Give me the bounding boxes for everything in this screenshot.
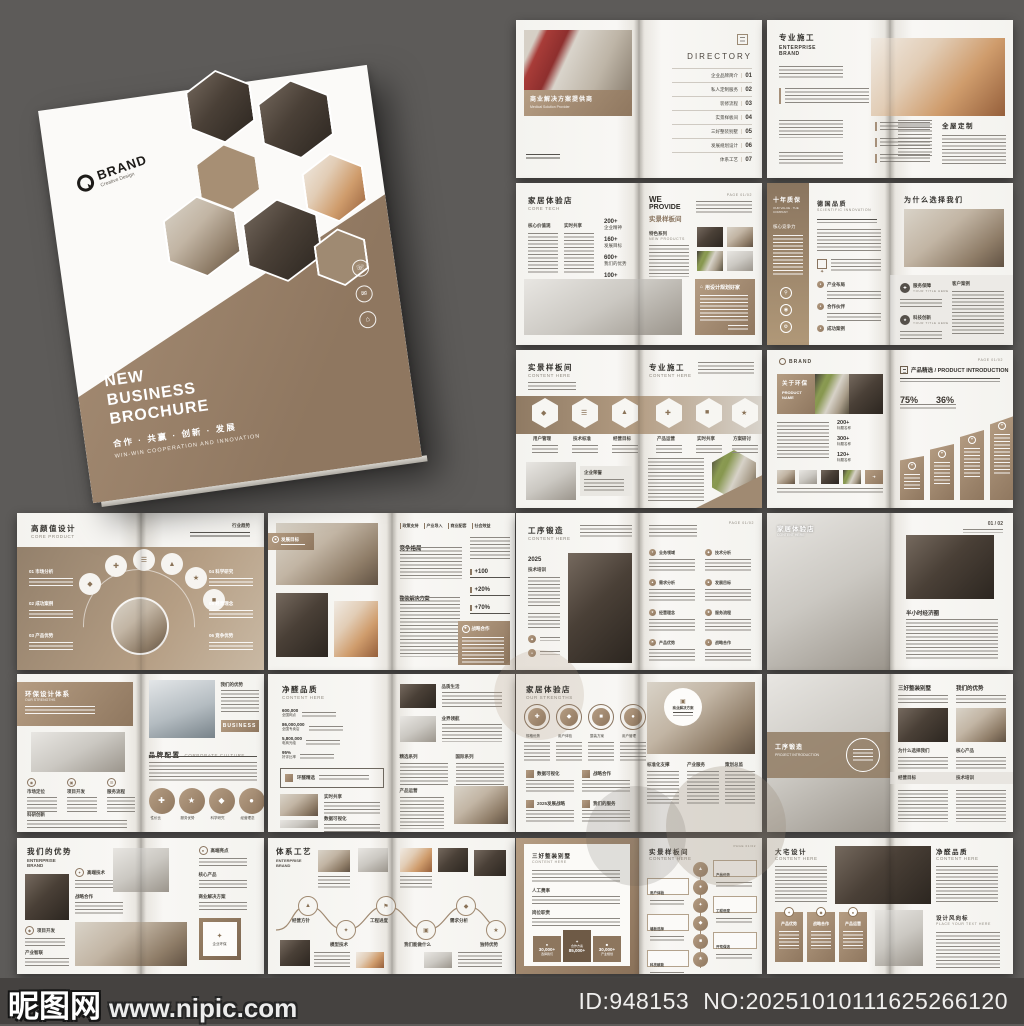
bedroom-photo <box>647 682 755 754</box>
grid-item-icon <box>582 800 590 808</box>
step-node: ★ <box>693 952 708 967</box>
mini-photo <box>318 850 350 872</box>
text-lines <box>700 295 748 321</box>
stair-photo <box>849 374 883 414</box>
brown-sidebar: 十年质保 OUR VALUE · THE COMPANY 核心竞争力 ⚲ ◉ ⚙ <box>767 183 809 345</box>
spread-product-intro: BRAND 关于环保 PRODUCT NAME 200+标题名称 300+标题名… <box>767 350 1013 508</box>
kitchen-photo <box>113 848 169 892</box>
watermark: 昵图网 www.nipic.com <box>8 981 297 1026</box>
text-lines <box>400 547 462 579</box>
text-lines <box>648 458 704 502</box>
value-circle: ★ <box>179 788 205 814</box>
item-icon: ■ <box>705 579 712 586</box>
text-lines <box>656 445 682 455</box>
text-lines <box>777 488 883 494</box>
gear-icon: ⚙ <box>780 321 792 333</box>
design-banner: ⌂用设计规划好家 <box>695 279 755 335</box>
mail-icon: ✉ <box>355 284 374 303</box>
feature-icon: ▲ <box>161 553 183 575</box>
text-lines <box>817 219 877 223</box>
stats-column: 200+企业精神 160+发展目标 600+我们的优势 100+业务范围 <box>604 219 627 285</box>
text-lines <box>209 642 253 652</box>
directory-item: 实景样板间|04 <box>672 110 752 124</box>
value-tile: ✦ 产品优势 <box>775 912 803 962</box>
text-lines <box>732 445 758 455</box>
kitchen-bar-photo <box>815 374 849 414</box>
mini-photo <box>843 470 861 484</box>
text-lines <box>906 619 998 661</box>
text-lines <box>528 613 560 629</box>
text-lines <box>564 233 594 273</box>
study-room-photo <box>904 209 1004 267</box>
honor-box: 企业荣誉 <box>580 466 632 496</box>
dining-photo <box>568 553 632 663</box>
text-lines <box>649 245 689 277</box>
text-lines <box>528 233 558 273</box>
brand-logo-icon <box>75 172 97 194</box>
text-lines <box>827 291 881 299</box>
text-lines <box>817 229 881 251</box>
location-icon: ⌂ <box>358 310 377 329</box>
bullet-icon: ● <box>817 281 824 288</box>
strength-circle: ✚ <box>524 704 550 730</box>
directory-item: 体系工艺|07 <box>672 152 752 166</box>
text-lines <box>831 259 881 271</box>
dot-icon: ◆ <box>25 926 34 935</box>
grid-item-icon <box>526 770 534 778</box>
strength-circle: ● <box>620 704 646 730</box>
leaf-icon: ✦ <box>908 462 916 470</box>
text-lines <box>696 445 722 455</box>
feature-icon: ★ <box>185 567 207 589</box>
leaf-icon: ✦ <box>968 436 976 444</box>
monitor-icon: ▣ <box>67 778 76 787</box>
text-lines <box>190 532 250 539</box>
timeline-node: ▲ <box>298 896 318 916</box>
text-lines <box>572 445 598 455</box>
text-lines <box>942 135 1006 165</box>
leaf-icon: ✦ <box>217 932 223 940</box>
brochure-cover: BRAND Creative Design NEW BUSINESS BROCH… <box>38 65 422 503</box>
text-lines <box>221 690 259 714</box>
title-band: 环保设计体系 OUR STRENGTHS <box>17 682 133 726</box>
mini-photo <box>727 251 753 271</box>
select-box: 环醛精选 <box>280 768 384 788</box>
timeline-node: ★ <box>486 920 506 940</box>
value-circle: ✚ <box>149 788 175 814</box>
right-title: 全屋定制 <box>942 120 1006 130</box>
tile-icon: ● <box>848 907 858 917</box>
step-box: 科技赋能 <box>647 950 689 967</box>
text-lines <box>149 762 257 782</box>
mini-photo <box>727 227 753 247</box>
directory-item: 装修流程|03 <box>672 96 752 110</box>
value-tile: ● 产品运营 <box>839 912 867 962</box>
goal-badge: ◉发展目标 <box>268 533 314 550</box>
directory-item: 企业品牌简介|01 <box>672 68 752 82</box>
value-tile: ◆ 战略合作 <box>807 912 835 962</box>
text-lines <box>900 331 942 339</box>
bullet-icon: ● <box>817 325 824 332</box>
spread-eco-design: 环保设计体系 OUR STRENGTHS ◉市场定位 ▣项目开发 ☰服务流程 科… <box>17 674 264 832</box>
tile-icon: ◆ <box>816 907 826 917</box>
spread-quality: 净醛品质CONTENT HERE 600,000全国网点 86,000,000全… <box>268 674 515 832</box>
industrial-photo <box>835 846 931 904</box>
caption-zh: 商业解决方案提供商 <box>530 94 626 103</box>
value-circle: ● <box>239 788 265 814</box>
text-lines <box>584 479 624 493</box>
item-icon: ▲ <box>649 579 656 586</box>
mini-photo <box>821 470 839 484</box>
stock-preview-canvas: { "watermark": {"site": "昵图网", "url": "w… <box>0 0 1024 1024</box>
grid-item-icon <box>526 800 534 808</box>
mini-photo <box>424 952 452 968</box>
text-lines <box>785 88 869 104</box>
text-lines <box>773 235 803 277</box>
translucent-band: 工序锻造 PROJECT INTRODUCTION <box>767 732 890 778</box>
step-box: 工程进度 <box>713 896 757 913</box>
text-lines <box>827 313 881 321</box>
hallway-photo <box>334 601 378 657</box>
more-tile: ➔ <box>865 470 883 484</box>
phone-icon: ☏ <box>351 259 370 278</box>
wardrobe-photo <box>875 910 923 966</box>
leaf-icon: ✦ <box>938 450 946 458</box>
dot-icon: ✦ <box>75 868 84 877</box>
eco-badge: ✦ 企业环保 <box>199 918 241 960</box>
shield-icon: ✚ <box>900 283 910 293</box>
abstract-room-photo <box>149 680 215 738</box>
living-photo <box>454 786 508 824</box>
bedroom-photo <box>898 708 948 742</box>
value-circle: ◆ <box>209 788 235 814</box>
spread-core-product: 高颜值设计CORE PRODUCT 行业趋势 ◆ ✚ ☰ ▲ ★ ■ 01 市场… <box>17 513 264 670</box>
step-box: 开荒保洁 <box>713 932 757 949</box>
text-lines <box>532 445 558 455</box>
text-lines <box>470 537 510 561</box>
step-box: 墙板选择 <box>647 914 689 931</box>
step-node: ■ <box>693 934 708 949</box>
feature-icon: ☰ <box>133 549 155 571</box>
item-icon: ✚ <box>705 609 712 616</box>
image-id: ID:948153 <box>579 988 690 1015</box>
handshake-icon: ✚ <box>462 625 470 633</box>
text-lines <box>27 820 127 828</box>
spread-project-intro: 工序锻造 PROJECT INTRODUCTION 三好整装别墅 我们的优势 为… <box>767 674 1013 832</box>
spread-ten-year-warranty: 十年质保 OUR VALUE · THE COMPANY 核心竞争力 ⚲ ◉ ⚙… <box>767 183 1013 345</box>
spread-cover-directory: 商业解决方案提供商 Medical Solution Provider DIRE… <box>516 20 762 178</box>
directory-item: 发展规划设计|06 <box>672 138 752 152</box>
step-node: ◆ <box>693 916 708 931</box>
mini-photo <box>400 848 432 872</box>
grid-icon <box>900 366 908 374</box>
bathroom-photo <box>31 732 125 772</box>
text-lines <box>728 325 748 331</box>
text-lines <box>779 66 843 80</box>
text-lines <box>209 610 253 620</box>
dot-icon: ● <box>199 846 208 855</box>
grid-item-icon <box>582 770 590 778</box>
leaf-icon: ✦ <box>998 422 1006 430</box>
text-lines <box>25 706 95 716</box>
step-bar: ✦ <box>930 444 954 500</box>
lobby-photo <box>276 593 328 657</box>
text-lines <box>649 525 697 539</box>
stat-tile: ●30,000+选择我们 <box>533 936 561 962</box>
mini-photo <box>799 470 817 484</box>
spread-hex-features: 实景样板间CONTENT HERE 专业施工CONTENT HERE ◆ ☰ ▲… <box>516 350 762 508</box>
spread-showroom: 家居体验店 CONTENT HERE 01 / 02 半小时经济圈 <box>767 513 1013 670</box>
directory-icon <box>737 34 748 45</box>
store-photo <box>956 708 1006 742</box>
mini-photo <box>356 952 384 968</box>
text-lines <box>880 138 930 147</box>
tab-row: 政策支持 产业导入 商业配套 社会效益 <box>400 523 491 529</box>
item-icon: ★ <box>649 609 656 616</box>
item-icon: ✦ <box>649 549 656 556</box>
text-lines <box>779 120 843 138</box>
living-panorama-photo <box>75 922 187 966</box>
watermark-url: www.nipic.com <box>109 993 297 1024</box>
spread-mansion-design: 大宅设计CONTENT HERE ✦ 产品优势 ◆ 战略合作 ● 产品运营 净醛… <box>767 838 1013 974</box>
text-lines <box>696 201 752 213</box>
text-lines <box>900 299 942 309</box>
loft-stairs-photo <box>871 38 1005 116</box>
text-lines <box>963 529 1003 533</box>
text-lines <box>698 362 754 376</box>
step-bar: ✦ <box>960 430 984 500</box>
about-banner: 关于环保 PRODUCT NAME <box>777 374 883 414</box>
mini-photo <box>474 850 506 876</box>
text-lines <box>29 610 73 620</box>
mini-photo <box>280 940 310 966</box>
section-title-zh: 专业施工 <box>779 32 816 43</box>
brand-logo: BRAND Creative Design <box>74 152 151 196</box>
mini-photo <box>400 716 436 742</box>
text-lines <box>880 122 930 131</box>
brand-logo-icon <box>779 358 786 365</box>
text-lines <box>952 291 1004 335</box>
home-icon: ⌂ <box>700 285 703 290</box>
image-no: NO:20251010111625266120 <box>703 988 1008 1015</box>
spread-strengths: 家居体验店OUR STRENGTHS ✚ ◆ ■ ● 规格优势 用户体验 整装方… <box>516 674 762 832</box>
caption-en: Medical Solution Provider <box>530 105 626 109</box>
hexagon-photo <box>182 65 258 147</box>
item-icon: ◆ <box>705 549 712 556</box>
text-lines <box>777 422 829 460</box>
bedroom-photo <box>906 535 994 599</box>
item-icon: ● <box>705 639 712 646</box>
text-lines <box>880 154 930 163</box>
room-photo <box>526 462 576 500</box>
stat-tile: ■30,000+产业规划 <box>593 936 621 962</box>
text-lines <box>209 578 253 588</box>
text-lines <box>612 445 638 455</box>
mini-photo <box>697 227 723 247</box>
circle-caption <box>846 738 880 772</box>
mini-icon: ◆ <box>528 635 536 643</box>
timeline-node: ✦ <box>336 920 356 940</box>
bullet-icon: ● <box>817 303 824 310</box>
text-lines <box>526 154 560 161</box>
caption-band: 商业解决方案提供商 Medical Solution Provider <box>524 90 632 116</box>
tile-icon: ✦ <box>784 907 794 917</box>
stats-list: 600,000全国网点 86,000,000全国专卖店 5,800,000电商光… <box>282 708 382 760</box>
step-bar: ✦ <box>990 416 1013 500</box>
mini-photo <box>438 848 468 872</box>
timeline-node: ◆ <box>456 896 476 916</box>
spread-construction: 专业施工 ENTERPRISE BRAND 全屋定制 <box>767 20 1013 178</box>
box-icon: ▣ <box>680 698 686 705</box>
text-lines <box>400 597 460 657</box>
chat-icon: ☰ <box>107 778 116 787</box>
sofa-photo <box>524 279 682 335</box>
spread-strategy: ◉发展目标 政策支持 产业导入 商业配套 社会效益 竞争格局 +100 +20%… <box>268 513 515 670</box>
stats-column: 200+标题名称 300+标题名称 120+标题名称 <box>837 420 851 463</box>
directory-title: DIRECTORY <box>687 52 752 61</box>
mini-photo <box>400 684 436 708</box>
mini-photo <box>697 251 723 271</box>
stair-room-photo <box>25 874 69 920</box>
item-icon: ⚑ <box>649 639 656 646</box>
text-lines <box>900 404 956 410</box>
text-lines <box>528 382 576 391</box>
step-node: ✦ <box>693 898 708 913</box>
timeline-node: ▣ <box>416 920 436 940</box>
text-lines <box>900 378 1000 382</box>
spread-core-tech: 家居体验店 CORE TECH 核心价值观 实时共享 200+企业精神 160+… <box>516 183 762 345</box>
cooperation-box: ✚战略合作 <box>458 621 510 665</box>
text-lines <box>29 642 73 652</box>
watermark-site: 昵图网 <box>8 981 101 1026</box>
step-bar: ✦ <box>900 456 924 500</box>
target-icon: ◉ <box>272 536 279 543</box>
business-button: BUSINESS <box>221 720 259 732</box>
stat-tile: ✦合作方案85,000+ <box>563 930 591 962</box>
text-lines <box>29 578 73 588</box>
strength-circle: ◆ <box>556 704 582 730</box>
hexagon-photo <box>254 75 336 164</box>
trophy-icon: ★ <box>900 315 910 325</box>
badge-icon: ✦ <box>817 259 827 269</box>
spread-process: 工序锻造CONTENT HERE 2025 技术培训 ◆ ● PAGE 01/0… <box>516 513 762 670</box>
text-lines <box>580 525 632 537</box>
strength-circle: ■ <box>588 704 614 730</box>
mini-photo <box>777 470 795 484</box>
directory-list: 企业品牌简介|01 私人定制服务|02 装修流程|03 实景样板间|04 三好整… <box>672 68 752 166</box>
spread-craft-timeline: 体系工艺 ENTERPRISE BRAND ▲ ✦ ⚑ ▣ ◆ ★ 经营方针 模… <box>268 838 515 974</box>
center-photo <box>111 597 169 655</box>
mini-photo <box>358 848 388 872</box>
directory-item: 私人定制服务|02 <box>672 82 752 96</box>
mini-photo <box>280 820 318 828</box>
spread-our-advantages: 我们的优势 ENTERPRISE BRAND ✦高端技术 战略合作 ◆项目开发 … <box>17 838 264 974</box>
pin-icon: ◉ <box>27 778 36 787</box>
mini-photo <box>280 794 318 816</box>
text-lines <box>528 577 560 607</box>
target-icon: ◉ <box>780 304 792 316</box>
text-lines <box>779 152 843 164</box>
text-lines <box>462 637 504 663</box>
feature-icon: ◆ <box>79 573 101 595</box>
search-icon: ⚲ <box>780 287 792 299</box>
feature-icon: ✚ <box>105 555 127 577</box>
directory-item: 三好整装别墅|05 <box>672 124 752 138</box>
solution-badge: ▣商业解决方案 <box>664 688 702 726</box>
timeline-node: ⚑ <box>376 896 396 916</box>
